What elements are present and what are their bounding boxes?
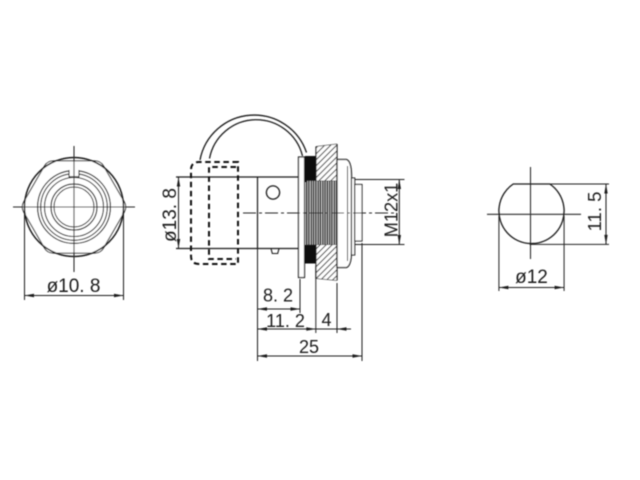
svg-text:4: 4	[321, 310, 331, 330]
svg-text:M12x1: M12x1	[382, 183, 402, 238]
svg-text:8. 2: 8. 2	[263, 286, 293, 306]
svg-text:25: 25	[299, 337, 319, 357]
svg-text:ø12: ø12	[515, 267, 548, 288]
svg-text:ø13. 8: ø13. 8	[160, 188, 181, 242]
svg-text:11. 2: 11. 2	[266, 311, 305, 331]
svg-text:ø10. 8: ø10. 8	[47, 276, 101, 297]
svg-text:11. 5: 11. 5	[584, 192, 605, 232]
